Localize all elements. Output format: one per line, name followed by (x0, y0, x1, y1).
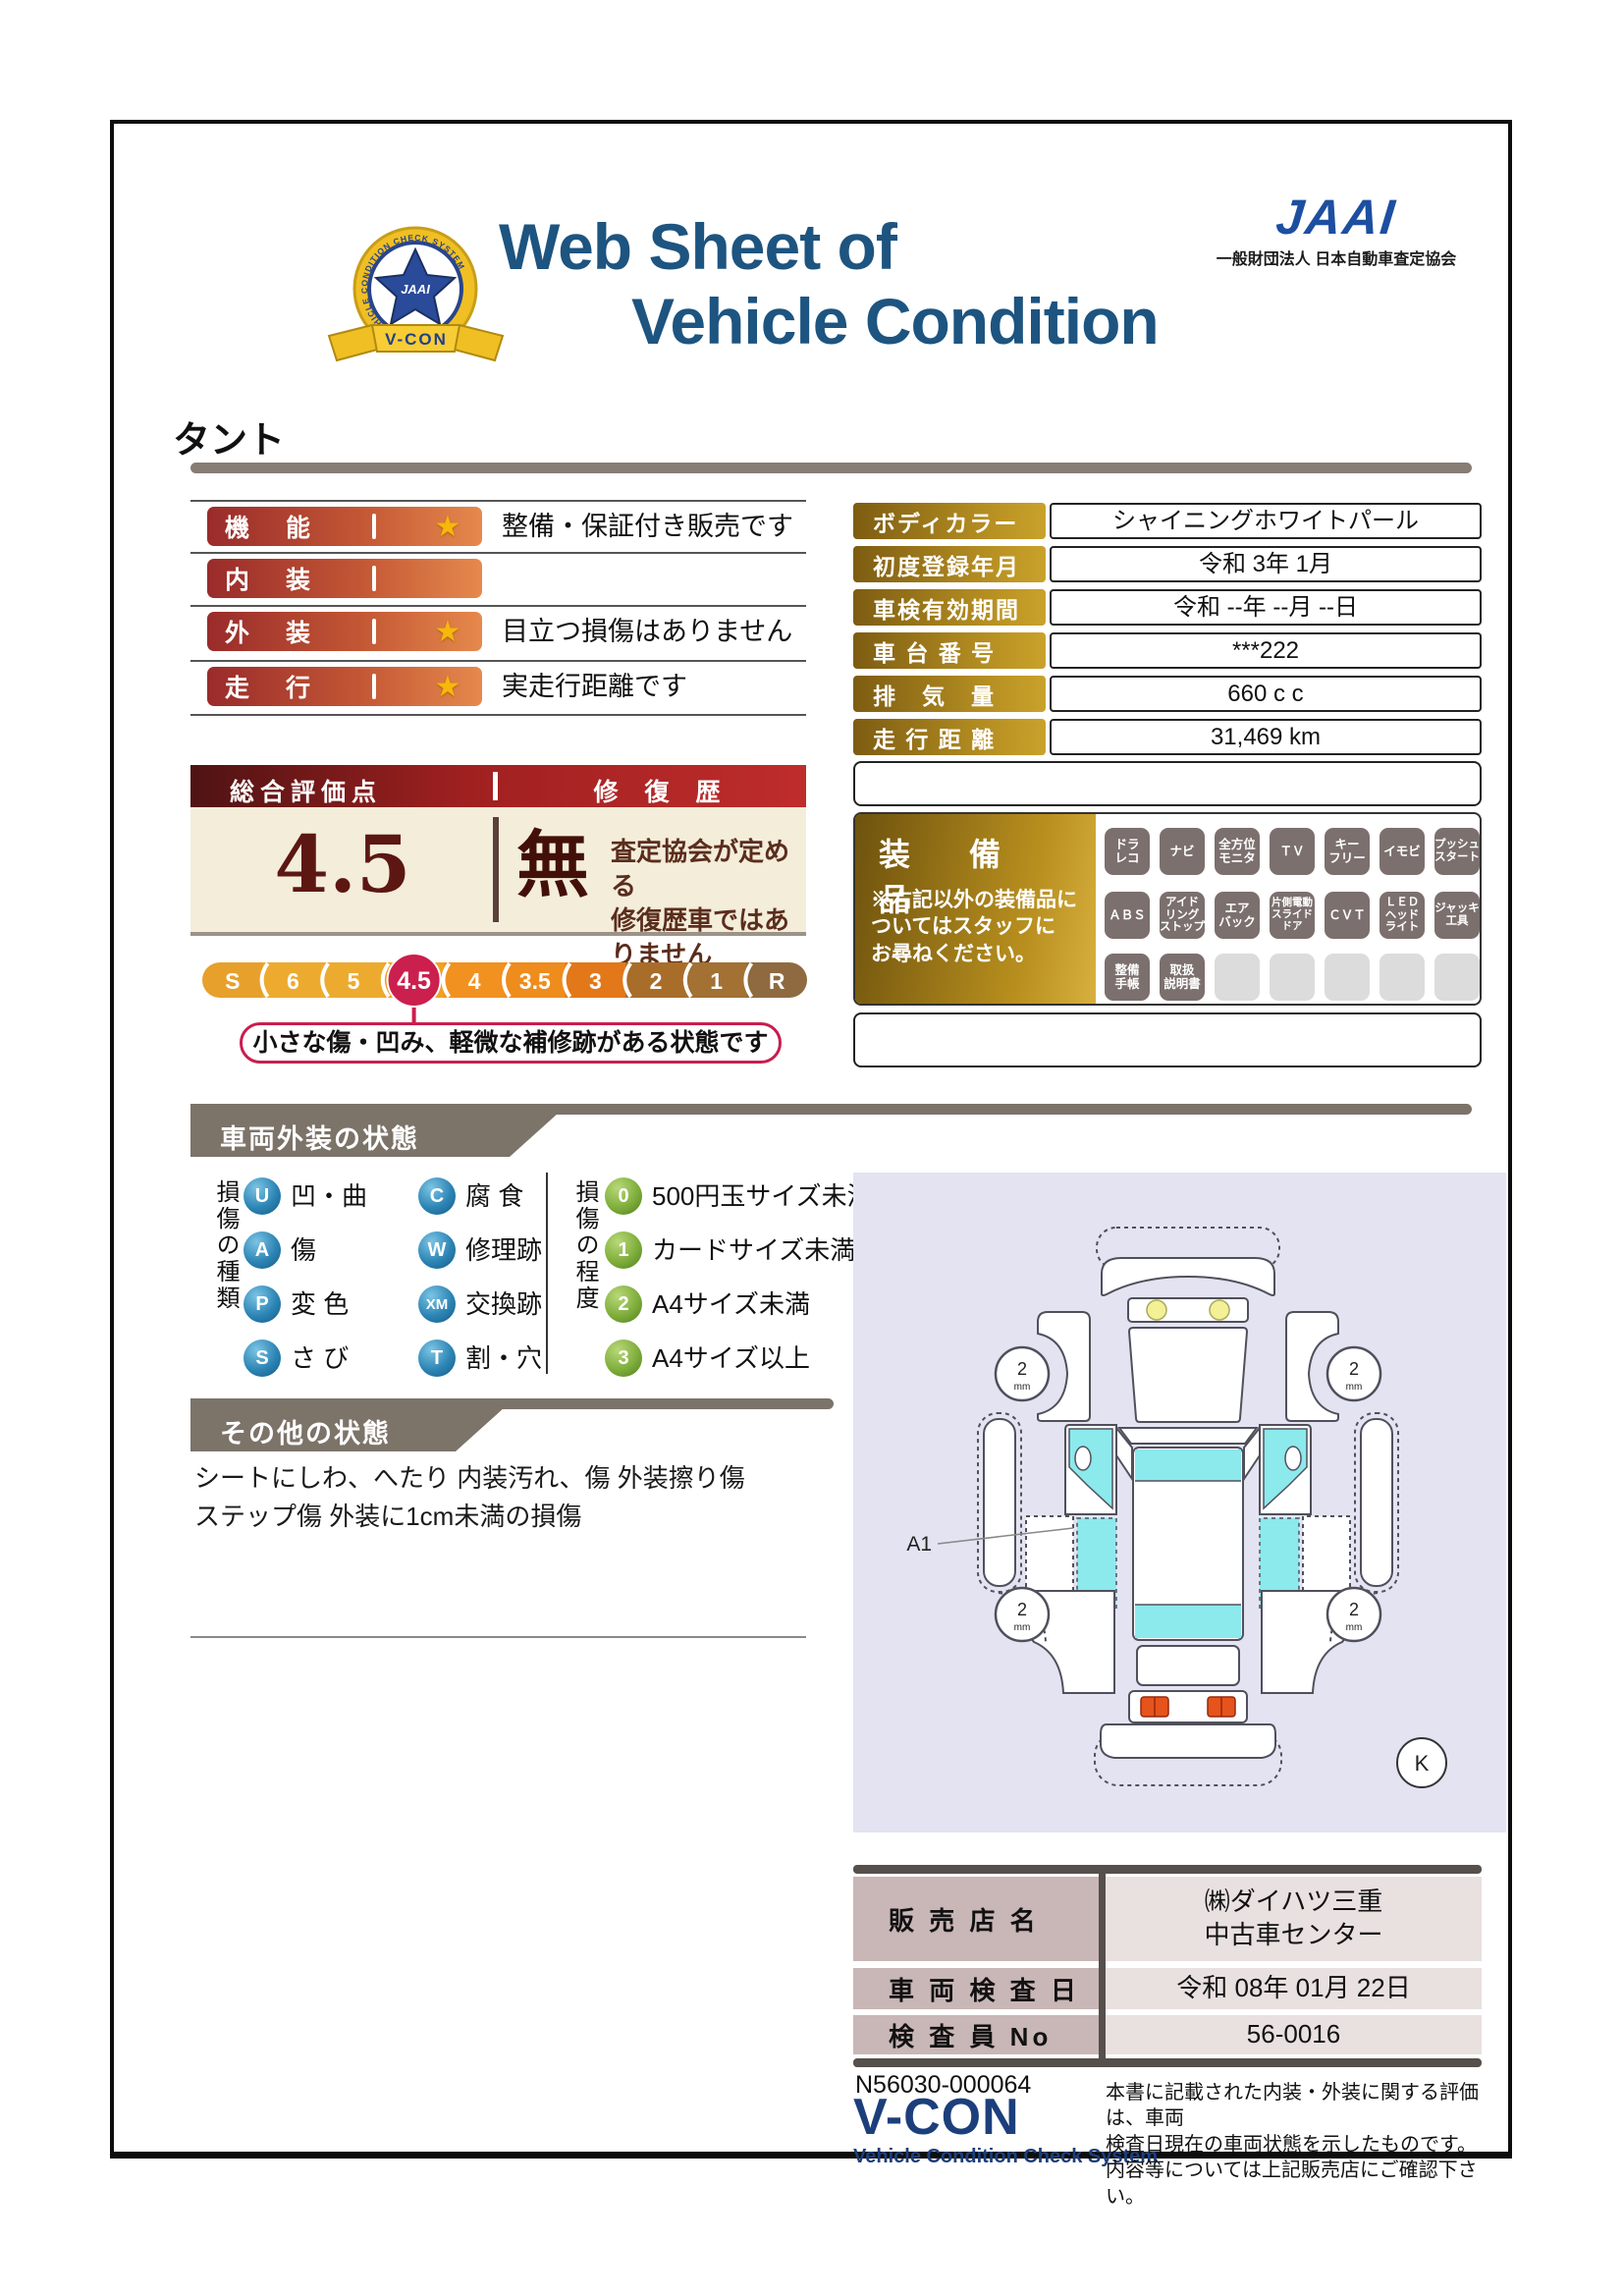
equipment-badge: エア バック (1215, 892, 1260, 939)
equipment-panel: 装 備 品 ※右記以外の装備品に ついてはスタッフに お尋ねください。 ドラ レ… (853, 812, 1482, 1006)
svg-text:6: 6 (287, 968, 299, 994)
equipment-badge: ＣＶＴ (1325, 892, 1370, 939)
info-row-chassis-number: 車 台 番 号 ***222 (853, 632, 1482, 669)
rating-label: 内 装 (225, 561, 316, 596)
info-label: 車検有効期間 (853, 589, 1046, 626)
other-section-title: その他の状態 (220, 1412, 391, 1450)
equipment-badge-empty (1270, 954, 1315, 1001)
info-label: 排 気 量 (853, 676, 1046, 712)
dealer-row-inspection-date: 車 両 検 査 日 令和 08年 01月 22日 (853, 1968, 1482, 2009)
info-label: ボディカラー (853, 503, 1046, 539)
overall-score-title: 総合評価点 (230, 773, 382, 808)
equipment-badge: プッシュ スタート (1434, 828, 1480, 875)
svg-text:3: 3 (589, 968, 602, 994)
repair-history-title: 修 復 歴 (524, 773, 799, 808)
damage-code-icon: C (418, 1177, 456, 1215)
svg-text:S: S (225, 968, 240, 994)
damage-type-label: 割・穴 (465, 1339, 542, 1377)
ratings-divider (190, 714, 806, 716)
divider-bar (372, 619, 376, 644)
dealer-label: 検 査 員 No (853, 2015, 1099, 2054)
equipment-badge: ＴＶ (1270, 828, 1315, 875)
svg-text:3.5: 3.5 (519, 968, 551, 994)
equipment-badge: ＬＥＤ ヘッド ライト (1380, 892, 1425, 939)
damage-type-label: さ び (291, 1339, 349, 1377)
svg-text:5: 5 (348, 968, 360, 994)
legend-divider (546, 1173, 548, 1374)
info-value: 31,469 km (1050, 719, 1482, 755)
info-row-inspection-period: 車検有効期間 令和 --年 --月 --日 (853, 589, 1482, 626)
level-code-icon: 2 (605, 1285, 642, 1323)
svg-text:JAAI: JAAI (401, 282, 430, 297)
damage-type-label: 交換跡 (465, 1285, 542, 1323)
info-row-mileage: 走 行 距 離 31,469 km (853, 719, 1482, 755)
rating-comment: 実走行距離です (502, 667, 687, 706)
exterior-section-title: 車両外装の状態 (220, 1118, 419, 1156)
divider-bar (372, 514, 376, 539)
damage-types-label: 損傷の種類 (208, 1179, 243, 1395)
overall-score-header: 総合評価点 修 復 歴 (190, 765, 806, 807)
ratings-divider (190, 500, 806, 502)
vehicle-name: タント (173, 410, 285, 464)
rating-label: 機 能 (225, 509, 316, 544)
rating-badge-function: 機 能 ★ (207, 507, 482, 546)
info-label: 走 行 距 離 (853, 719, 1046, 755)
other-status-text: シートにしわ、へたり 内装汚れ、傷 外装擦り傷 ステップ傷 外装に1cm未満の損… (194, 1459, 823, 1536)
level-code-icon: 1 (605, 1231, 642, 1269)
damage-code-icon: U (243, 1177, 281, 1215)
footer-note: 本書に記載された内装・外装に関する評価は、車両 検査日現在の車両状態を示したもの… (1106, 2080, 1498, 2210)
vcon-emblem: VEHICLE CONDITION CHECK SYSTEM JAAI V-CO… (315, 218, 516, 385)
level-code-icon: 3 (605, 1339, 642, 1377)
damage-type-label: 変 色 (291, 1285, 349, 1323)
svg-text:1: 1 (710, 968, 723, 994)
equipment-badge-empty (1215, 954, 1260, 1001)
divider-bar (372, 674, 376, 699)
info-row-displacement: 排 気 量 660 c c (853, 676, 1482, 712)
svg-text:2: 2 (1349, 1600, 1359, 1619)
condition-sheet: VEHICLE CONDITION CHECK SYSTEM JAAI V-CO… (110, 120, 1512, 2159)
equipment-note: ※右記以外の装備品に ついてはスタッフに お尋ねください。 (871, 887, 1077, 967)
repair-history-flag: 無 (516, 829, 589, 902)
dealer-table-bottom-bar (853, 2058, 1482, 2067)
vcon-logo: V-CON (853, 2092, 1020, 2143)
info-value: 令和 --年 --月 --日 (1050, 589, 1482, 626)
rating-comment: 整備・保証付き販売です (502, 507, 793, 546)
svg-text:4.5: 4.5 (397, 967, 431, 995)
dealer-row-shop: 販 売 店 名 ㈱ダイハツ三重 中古車センター (853, 1877, 1482, 1961)
ratings-divider (190, 605, 806, 607)
ratings-divider (190, 552, 806, 554)
rating-label: 外 装 (225, 614, 316, 649)
rating-comment: 目立つ損傷はありません (502, 612, 792, 651)
title-underline-bar (190, 463, 1472, 473)
damage-level-label: カードサイズ未満 (652, 1231, 855, 1269)
dealer-value: 令和 08年 01月 22日 (1106, 1968, 1482, 2009)
rating-badge-exterior: 外 装 ★ (207, 612, 482, 651)
headlight-icon (1210, 1300, 1229, 1320)
corner-mark: K (1415, 1751, 1430, 1776)
info-row-first-registration: 初度登録年月 令和 3年 1月 (853, 546, 1482, 582)
damage-level-label: A4サイズ未満 (652, 1285, 810, 1323)
svg-text:V-CON: V-CON (385, 330, 448, 349)
equipment-extra-box (853, 1012, 1482, 1067)
damage-code-icon: XM (418, 1285, 456, 1323)
equipment-badge: アイド リング ストップ (1160, 892, 1205, 939)
equipment-badge-empty (1325, 954, 1370, 1001)
jaai-subtitle: 一般財団法人 日本自動車査定協会 (1214, 246, 1459, 269)
page-canvas: VEHICLE CONDITION CHECK SYSTEM JAAI V-CO… (0, 0, 1623, 2296)
divider-bar (493, 817, 499, 922)
score-scale: S 6 5 4 3.5 3 2 1 R 4.5 (198, 949, 817, 1025)
dealer-row-inspector-no: 検 査 員 No 56-0016 (853, 2015, 1482, 2054)
divider-bar (372, 566, 376, 591)
damage-code-icon: S (243, 1339, 281, 1377)
score-callout: 小さな傷・凹み、軽微な補修跡がある状態です (240, 1022, 782, 1064)
rating-badge-interior: 内 装 (207, 559, 482, 598)
svg-text:2: 2 (650, 968, 663, 994)
info-row-bodycolor: ボディカラー シャイニングホワイトパール (853, 503, 1482, 539)
dealer-label: 車 両 検 査 日 (853, 1968, 1099, 2009)
jaai-logo: JAAI (1211, 192, 1461, 242)
svg-text:2: 2 (1017, 1600, 1027, 1619)
divider-line (190, 1636, 806, 1638)
equipment-badge: ＡＢＳ (1105, 892, 1150, 939)
equipment-badge: 整備 手帳 (1105, 954, 1150, 1001)
dealer-table-divider (1099, 1869, 1106, 2062)
star-icon: ★ (431, 670, 464, 704)
damage-type-label: 修理跡 (465, 1231, 542, 1269)
damage-marker-a1: A1 (906, 1533, 932, 1556)
info-value: 660 c c (1050, 676, 1482, 712)
damage-code-icon: A (243, 1231, 281, 1269)
svg-text:mm: mm (1346, 1382, 1363, 1393)
damage-code-icon: P (243, 1285, 281, 1323)
star-icon: ★ (431, 510, 464, 544)
rating-label: 走 行 (225, 669, 316, 704)
equipment-badge: キー フリー (1325, 828, 1370, 875)
equipment-badge: 全方位 モニタ (1215, 828, 1260, 875)
svg-text:mm: mm (1346, 1622, 1363, 1633)
svg-text:R: R (769, 968, 785, 994)
info-value: ***222 (1050, 632, 1482, 669)
damage-code-icon: W (418, 1231, 456, 1269)
svg-text:4: 4 (468, 968, 481, 994)
equipment-gold-cell: 装 備 品 ※右記以外の装備品に ついてはスタッフに お尋ねください。 (855, 814, 1096, 1004)
damage-type-label: 凹・曲 (291, 1177, 367, 1215)
info-value: 令和 3年 1月 (1050, 546, 1482, 582)
overall-score-value: 4.5 (220, 825, 465, 903)
info-label: 車 台 番 号 (853, 632, 1046, 669)
equipment-badge: ジャッキ 工具 (1434, 892, 1480, 939)
dealer-value: 56-0016 (1106, 2015, 1482, 2054)
sheet-title-line2: Vehicle Condition (631, 289, 1159, 354)
ratings-divider (190, 660, 806, 662)
rating-badge-driving: 走 行 ★ (207, 667, 482, 706)
sheet-title-line1: Web Sheet of (499, 214, 896, 279)
info-extra-box (853, 761, 1482, 806)
level-code-icon: 0 (605, 1177, 642, 1215)
vehicle-damage-diagram: 2mm 2mm 2mm 2mm A1 K (853, 1173, 1506, 1832)
headlight-icon (1147, 1300, 1166, 1320)
equipment-badge: ナビ (1160, 828, 1205, 875)
damage-type-label: 傷 (291, 1231, 316, 1269)
equipment-badge: イモビ (1380, 828, 1425, 875)
damage-level-label: 500円玉サイズ未満 (652, 1177, 873, 1215)
star-icon: ★ (431, 615, 464, 649)
svg-text:mm: mm (1014, 1382, 1031, 1393)
damage-type-label: 腐 食 (465, 1177, 523, 1215)
dealer-value: ㈱ダイハツ三重 中古車センター (1106, 1877, 1482, 1961)
equipment-badge-empty (1434, 954, 1480, 1001)
equipment-badge: ドラ レコ (1105, 828, 1150, 875)
damage-levels-label: 損傷の程度 (568, 1179, 602, 1395)
jaai-logo-block: JAAI 一般財団法人 日本自動車査定協会 (1214, 192, 1459, 269)
svg-text:2: 2 (1017, 1359, 1027, 1379)
equipment-badge-empty (1380, 954, 1425, 1001)
equipment-badge: 片側電動 スライド ドア (1270, 892, 1315, 939)
damage-code-icon: T (418, 1339, 456, 1377)
overall-score-body: 4.5 無 査定協会が定める 修復歴車ではありません (190, 807, 806, 936)
damage-level-label: A4サイズ以上 (652, 1339, 810, 1377)
info-value: シャイニングホワイトパール (1050, 503, 1482, 539)
equipment-badge: 取扱 説明書 (1160, 954, 1205, 1001)
vcon-emblem-icon: VEHICLE CONDITION CHECK SYSTEM JAAI V-CO… (315, 218, 516, 385)
info-label: 初度登録年月 (853, 546, 1046, 582)
dealer-label: 販 売 店 名 (853, 1877, 1099, 1961)
dealer-table-top-bar (853, 1865, 1482, 1874)
svg-text:mm: mm (1014, 1622, 1031, 1633)
divider-bar (493, 772, 498, 800)
svg-text:2: 2 (1349, 1359, 1359, 1379)
